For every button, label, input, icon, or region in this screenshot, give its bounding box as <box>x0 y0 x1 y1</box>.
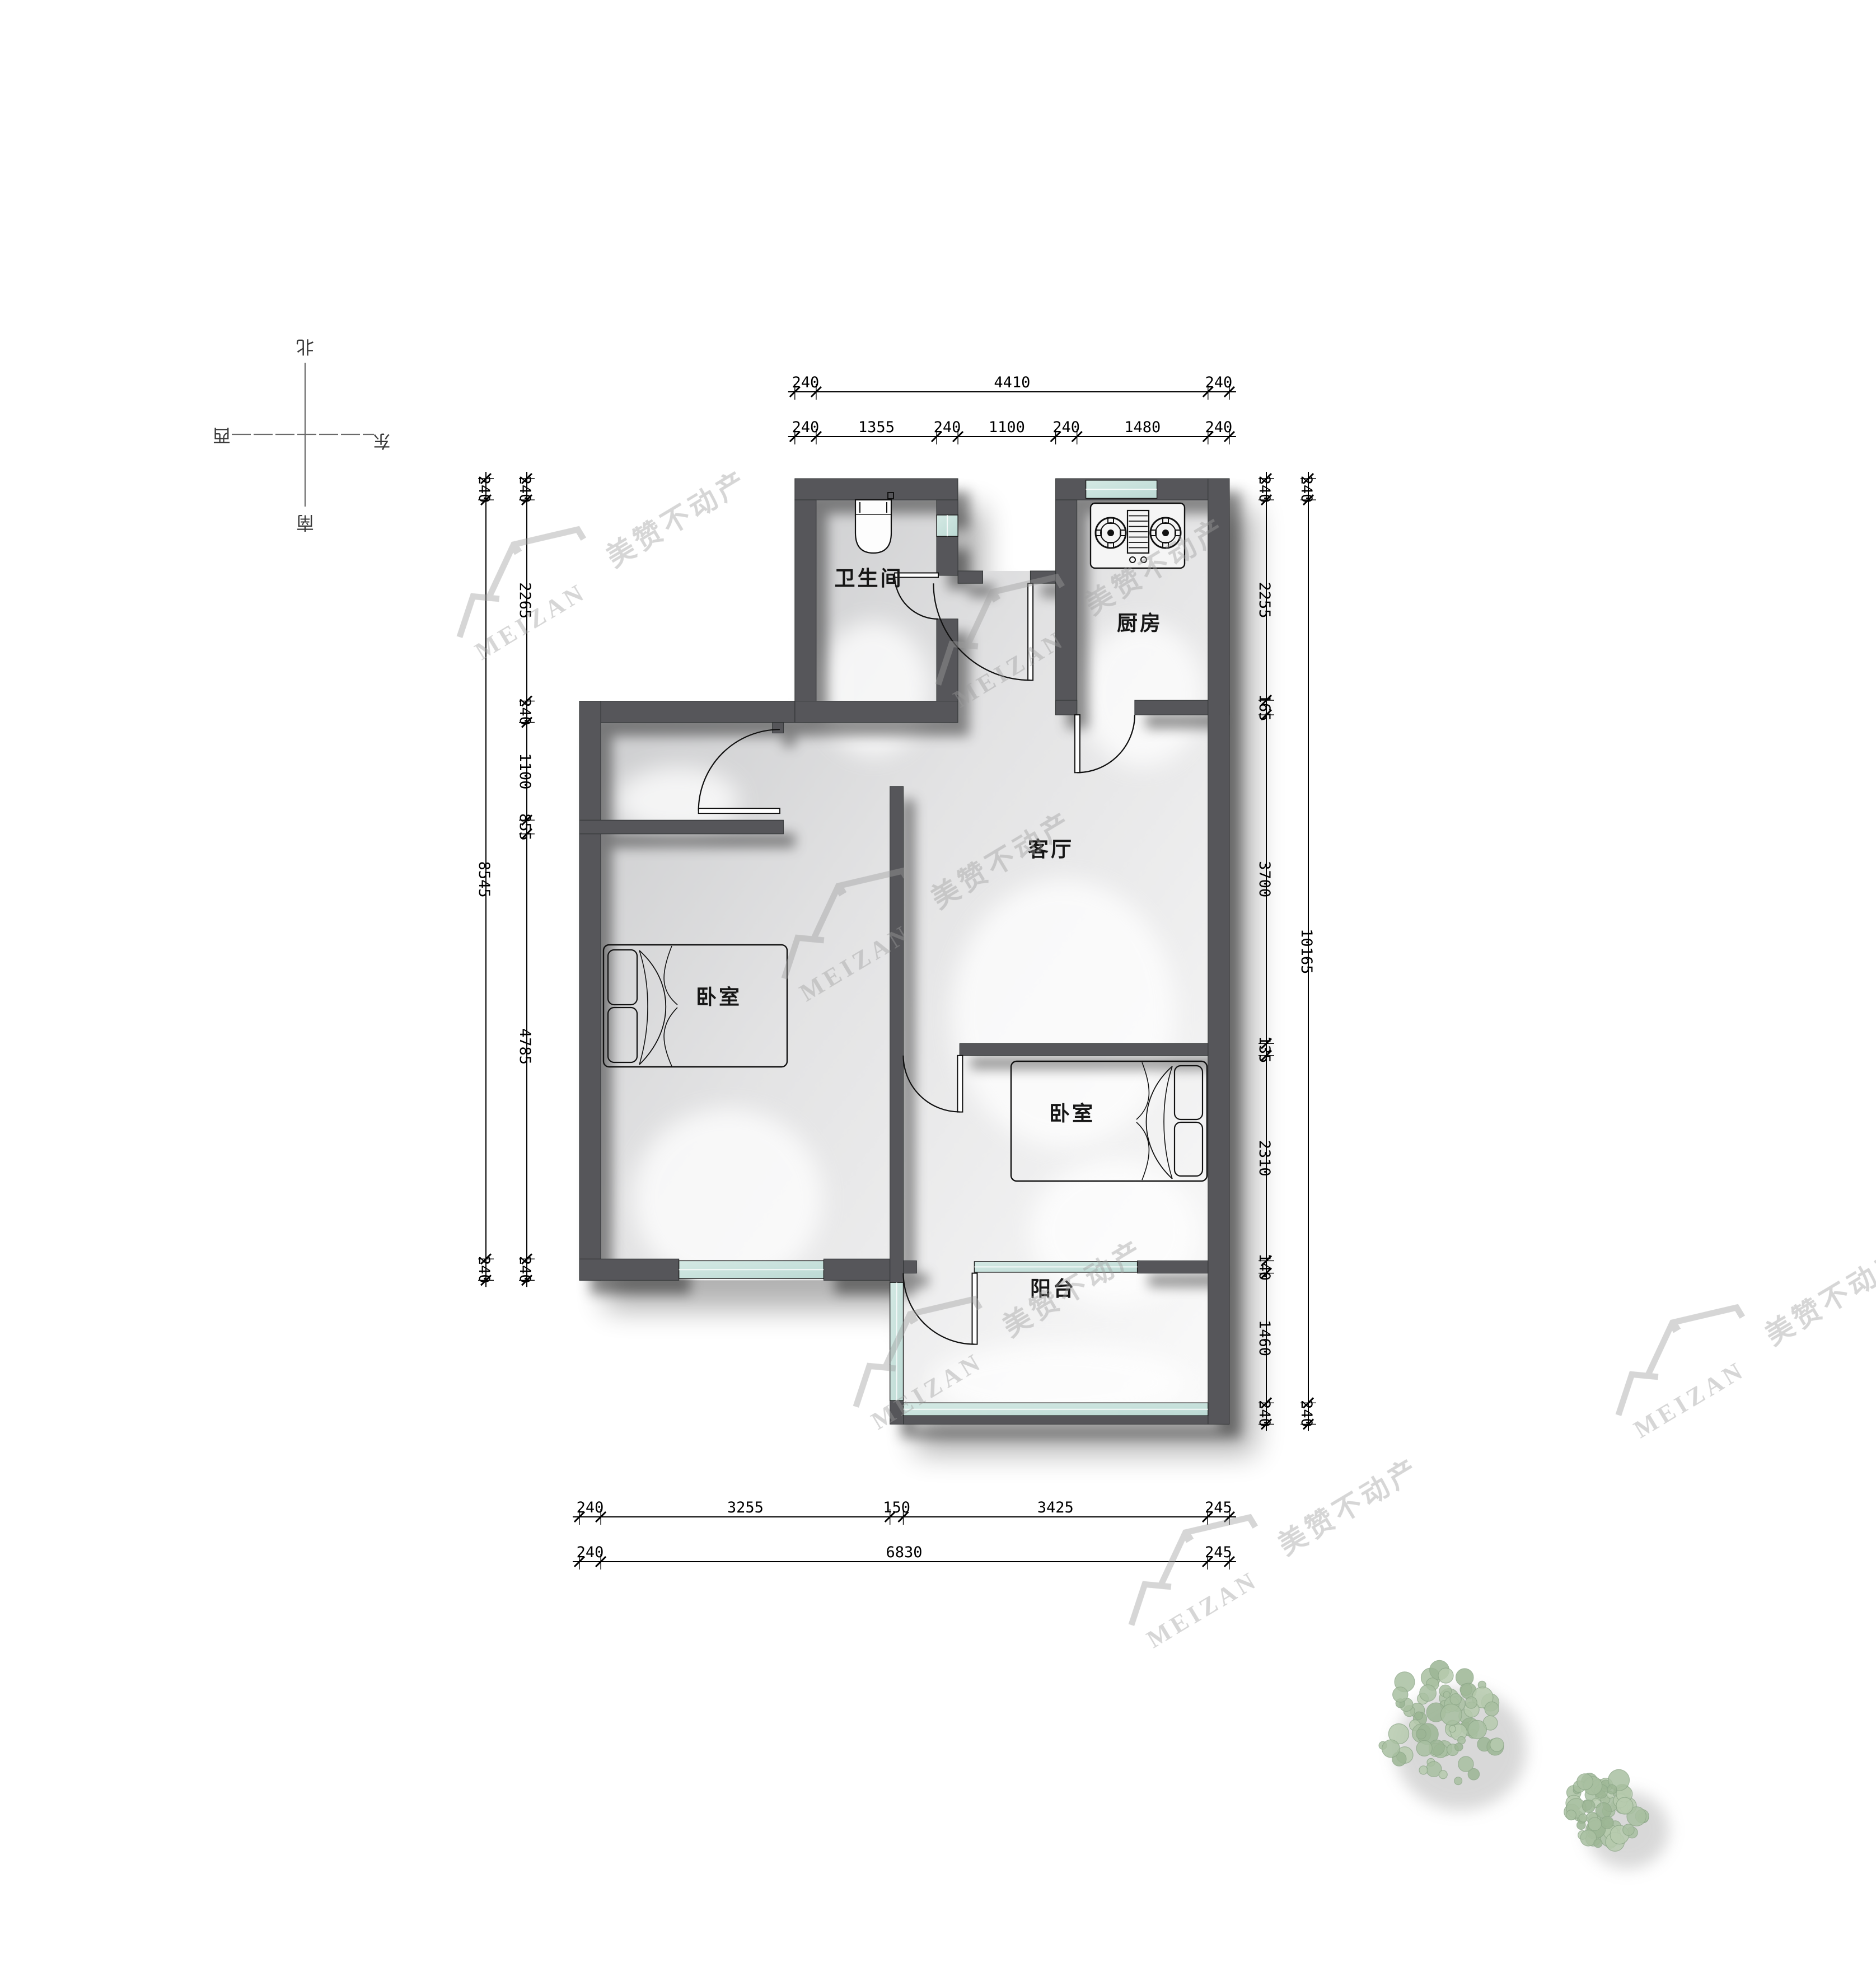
door-leaf <box>1075 715 1080 772</box>
tree-foliage-blob <box>1420 1685 1437 1702</box>
toilet <box>855 493 893 553</box>
dimension-chain-bottom_outer: 2406830245 <box>573 1544 1236 1570</box>
dim-label: 1100 <box>989 419 1025 436</box>
dimension-chain-top_outer: 2404410240 <box>788 374 1236 400</box>
tree-foliage-blob <box>1416 1740 1432 1756</box>
tree-foliage-blob <box>1566 1810 1576 1820</box>
floor-plan-canvas: 2404410240240135524011002401480240240854… <box>0 0 1876 1963</box>
dim-label: 1460 <box>1256 1320 1273 1356</box>
dimension-chain-top_inner: 240135524011002401480240 <box>788 419 1236 444</box>
wall <box>890 786 904 1282</box>
dim-label: 240 <box>1298 1400 1315 1427</box>
tree-foliage-blob <box>1623 1824 1634 1835</box>
compass-west: 西 <box>213 425 231 446</box>
wall <box>579 1259 679 1280</box>
dim-label: 140 <box>1256 1253 1273 1281</box>
wall <box>579 701 601 1281</box>
wall <box>937 536 958 575</box>
dim-label: 245 <box>1205 1499 1232 1516</box>
tree-foliage-blob <box>1607 1784 1617 1794</box>
dimension-chain-right_inner: 2402255165370013523101401460240 <box>1256 472 1274 1431</box>
wall <box>773 723 784 733</box>
tree <box>1379 1660 1527 1810</box>
tree-foliage-blob <box>1579 1814 1587 1823</box>
wall <box>824 1259 890 1280</box>
watermark-cn: 美赞不动产 <box>601 463 754 574</box>
wall <box>1056 700 1077 715</box>
dim-label: 2310 <box>1256 1140 1273 1177</box>
tree-foliage-blob <box>1485 1702 1499 1716</box>
dim-label: 3425 <box>1037 1499 1074 1516</box>
compass-north: 北 <box>296 336 314 358</box>
dim-label: 135 <box>1256 1036 1273 1064</box>
tree-foliage-blob <box>1415 1712 1423 1720</box>
watermark-latin: MEIZAN <box>1142 1566 1263 1653</box>
compass: 北南西东 <box>213 336 391 533</box>
floor-plan-page: 2404410240240135524011002401480240240854… <box>0 0 1876 1963</box>
wall <box>795 479 958 500</box>
dim-label: 1355 <box>858 419 895 436</box>
wall <box>579 701 795 723</box>
dim-label: 150 <box>883 1499 910 1516</box>
tree-foliage-blob <box>1454 1777 1462 1785</box>
dim-label: 240 <box>792 419 819 436</box>
tree-foliage-blob <box>1616 1797 1633 1814</box>
door-leaf <box>699 808 780 813</box>
dim-label: 6830 <box>886 1544 923 1561</box>
dim-label: 240 <box>516 476 534 503</box>
tree-foliage-blob <box>1449 1726 1456 1732</box>
wall <box>579 820 783 834</box>
compass-south: 南 <box>296 512 314 533</box>
tree-foliage-blob <box>1468 1720 1486 1739</box>
wall <box>795 500 816 701</box>
wall <box>904 1261 917 1273</box>
dim-label: 3700 <box>1256 861 1273 897</box>
door-leaf <box>957 1056 962 1112</box>
dim-label: 1480 <box>1124 419 1161 436</box>
wall <box>1208 479 1229 1424</box>
tree-foliage-blob <box>1455 1743 1463 1751</box>
dim-label: 240 <box>1052 419 1080 436</box>
tree-foliage-blob <box>1393 1687 1408 1702</box>
dimension-chain-right_outer: 24010165240 <box>1298 472 1316 1431</box>
dim-label: 240 <box>792 374 819 391</box>
brand-watermark: MEIZAN美赞不动产 <box>1592 1202 1876 1447</box>
dim-label: 240 <box>1256 1400 1273 1427</box>
compass-east: 东 <box>373 430 391 452</box>
brand-watermark: MEIZAN美赞不动产 <box>433 424 759 669</box>
room-label-bedroom-left: 卧室 <box>696 985 742 1009</box>
dim-label: 8545 <box>475 861 493 898</box>
dim-label: 245 <box>1205 1544 1232 1561</box>
wall <box>958 571 983 583</box>
watermark-cn: 美赞不动产 <box>1760 1241 1876 1352</box>
tree-foliage-blob <box>1490 1738 1504 1751</box>
watermark-cn: 美赞不动产 <box>1273 1451 1426 1562</box>
tree-foliage-blob <box>1596 1802 1611 1818</box>
dim-label: 165 <box>1256 694 1273 722</box>
room-label-bedroom-right: 卧室 <box>1049 1102 1095 1126</box>
dim-label: 240 <box>1256 476 1273 503</box>
dim-label: 240 <box>475 476 493 503</box>
dim-label: 4785 <box>516 1028 534 1065</box>
dim-label: 2255 <box>1256 582 1273 619</box>
tree-foliage-blob <box>1458 1756 1473 1772</box>
dim-label: 4410 <box>994 374 1030 391</box>
tree-foliage-blob <box>1601 1816 1613 1829</box>
dim-label: 240 <box>1298 476 1315 503</box>
wall <box>937 500 958 515</box>
tree-foliage-blob <box>1466 1697 1477 1708</box>
tree-foliage-blob <box>1583 1800 1596 1813</box>
dim-label: 855 <box>516 813 534 841</box>
tree-foliage-blob <box>1440 1704 1462 1725</box>
dimension-chain-bottom_inner: 24032551503425245 <box>573 1499 1236 1525</box>
wall <box>1056 500 1077 715</box>
watermark-latin: MEIZAN <box>1629 1356 1750 1444</box>
light-spot <box>1080 621 1204 767</box>
tree-foliage-blob <box>1594 1839 1602 1848</box>
dim-label: 3255 <box>727 1499 764 1516</box>
room-label-bathroom: 卫生间 <box>835 566 904 591</box>
dim-label: 240 <box>1205 374 1232 391</box>
dim-label: 240 <box>934 419 961 436</box>
tree-foliage-blob <box>1439 1770 1447 1779</box>
dim-label: 240 <box>1205 419 1232 436</box>
wall <box>904 1416 1208 1424</box>
tree-foliage-blob <box>1419 1766 1428 1774</box>
tree-foliage-blob <box>1382 1740 1400 1758</box>
room-label-kitchen: 厨房 <box>1117 611 1163 635</box>
dimension-chain-left_inner: 240226524011008554785240 <box>516 472 535 1287</box>
tree-foliage-blob <box>1416 1729 1426 1739</box>
dim-label: 1100 <box>516 753 534 789</box>
wall <box>795 701 958 723</box>
tree-foliage-blob <box>1438 1668 1453 1683</box>
tree-foliage-blob <box>1588 1817 1602 1831</box>
dim-label: 10165 <box>1298 929 1315 974</box>
dim-label: 240 <box>577 1499 604 1516</box>
dim-label: 240 <box>475 1256 493 1283</box>
dim-label: 240 <box>516 1256 534 1283</box>
tree-foliage-blob <box>1577 1774 1593 1790</box>
light-spot <box>817 621 929 756</box>
tree <box>1564 1769 1669 1868</box>
dim-label: 240 <box>577 1544 604 1561</box>
wall <box>960 1043 1208 1055</box>
dim-label: 240 <box>516 698 534 725</box>
tree-foliage-blob <box>1450 1694 1461 1705</box>
